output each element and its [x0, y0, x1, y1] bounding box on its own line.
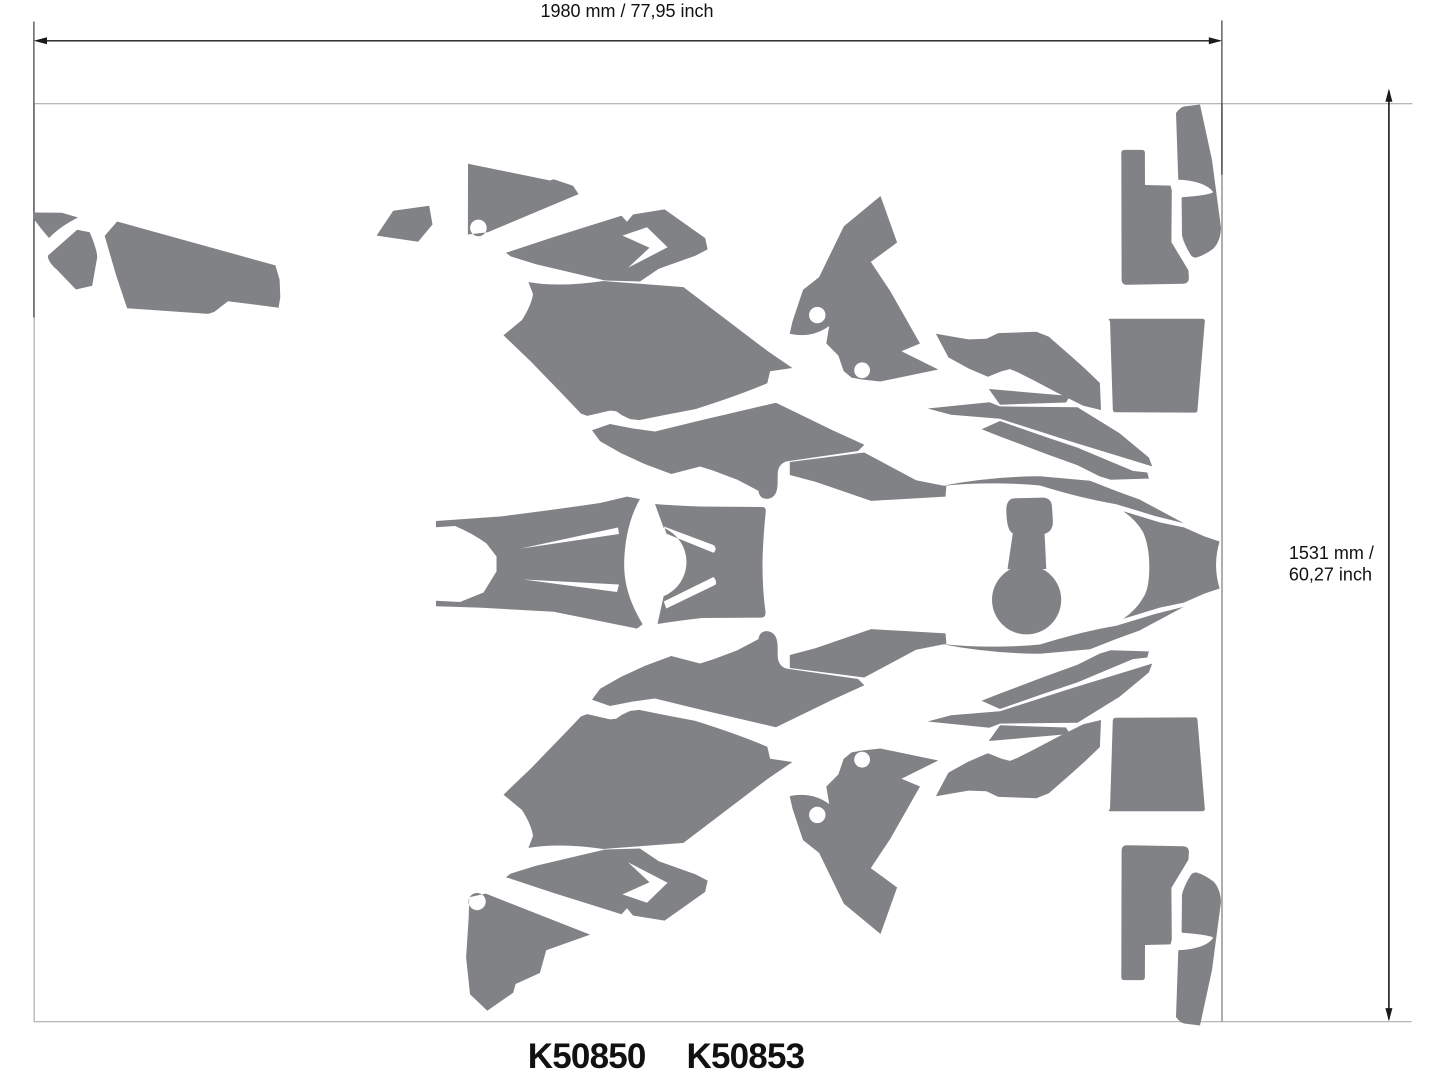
svg-text:1531 mm /: 1531 mm /: [1289, 543, 1374, 563]
svg-text:K50850: K50850: [528, 1037, 646, 1076]
svg-text:60,27 inch: 60,27 inch: [1289, 564, 1372, 584]
svg-text:K50853: K50853: [686, 1037, 804, 1076]
svg-text:1980 mm / 77,95 inch: 1980 mm / 77,95 inch: [540, 1, 713, 21]
